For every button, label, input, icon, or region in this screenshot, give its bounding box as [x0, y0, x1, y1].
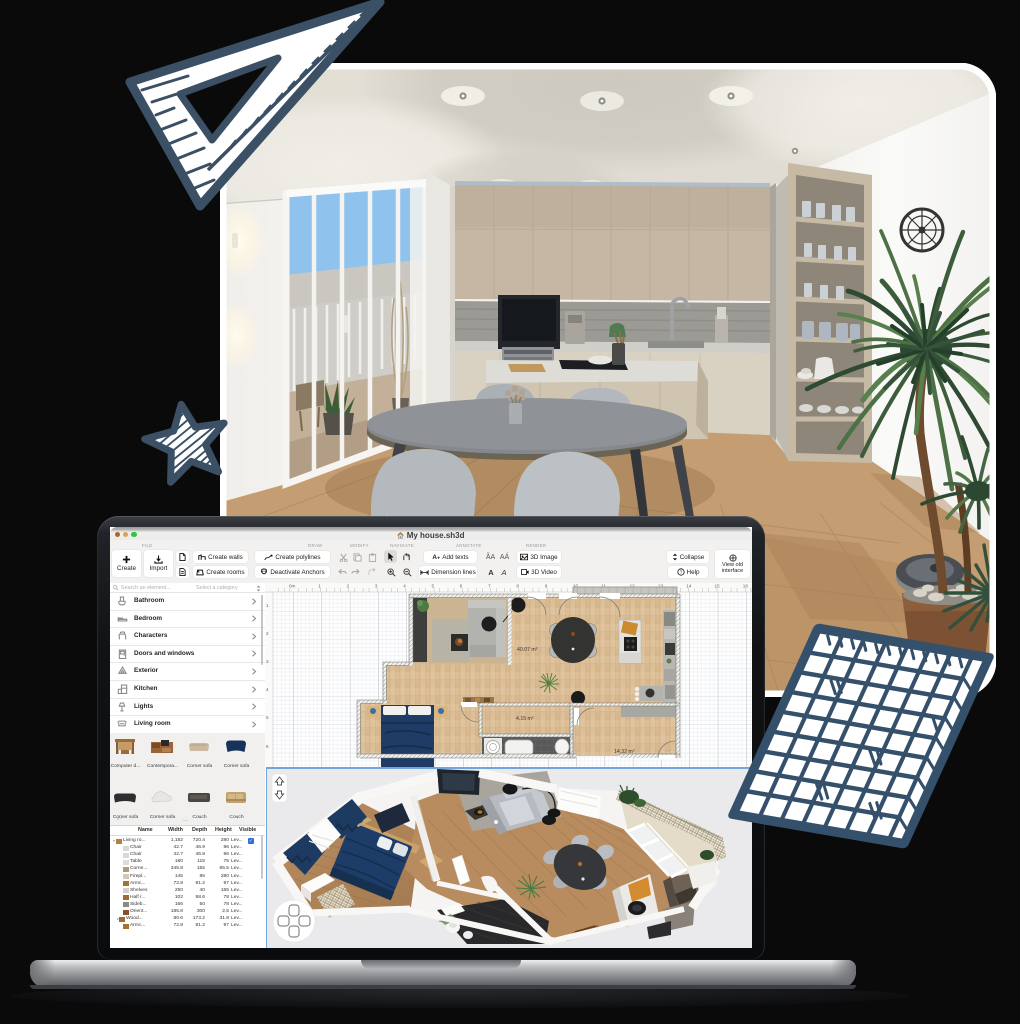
svg-text:6: 6	[266, 744, 269, 749]
svg-text:5: 5	[266, 715, 269, 720]
svg-text:1: 1	[318, 584, 321, 589]
svg-text:2: 2	[266, 631, 269, 636]
svg-text:14: 14	[686, 584, 692, 589]
svg-text:14.32 m²: 14.32 m²	[614, 749, 635, 755]
svg-text:40.07 m²: 40.07 m²	[517, 647, 538, 653]
svg-text:6: 6	[460, 584, 463, 589]
svg-text:9: 9	[545, 584, 548, 589]
svg-text:3: 3	[375, 584, 378, 589]
svg-text:2: 2	[347, 584, 350, 589]
svg-text:4.15 m²: 4.15 m²	[516, 716, 534, 722]
svg-text:8: 8	[516, 584, 519, 589]
svg-text:15: 15	[715, 584, 721, 589]
svg-text:16: 16	[743, 584, 749, 589]
svg-text:?: ?	[679, 570, 682, 576]
svg-text:3: 3	[266, 659, 269, 664]
svg-text:4: 4	[266, 687, 269, 692]
svg-text:5: 5	[432, 584, 435, 589]
svg-text:4: 4	[403, 584, 406, 589]
svg-text:1: 1	[266, 603, 269, 608]
svg-text:7: 7	[488, 584, 491, 589]
svg-text:0m: 0m	[289, 584, 296, 589]
